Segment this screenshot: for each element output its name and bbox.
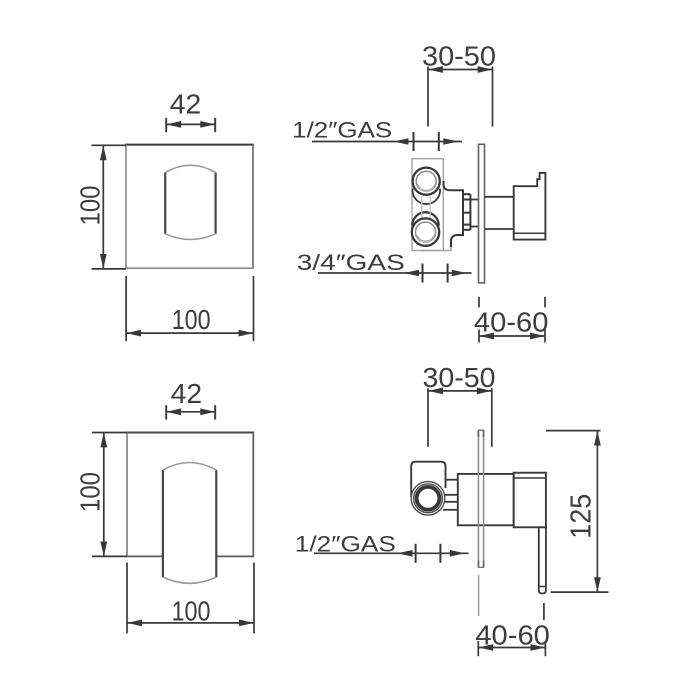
svg-text:30-50: 30-50 xyxy=(423,362,496,393)
svg-text:40-60: 40-60 xyxy=(475,619,550,650)
svg-text:42: 42 xyxy=(170,89,202,120)
svg-text:1/2″GAS: 1/2″GAS xyxy=(292,118,392,143)
svg-text:3/4″GAS: 3/4″GAS xyxy=(297,250,405,275)
svg-text:100: 100 xyxy=(172,596,211,627)
svg-text:40-60: 40-60 xyxy=(474,307,549,338)
svg-text:125: 125 xyxy=(566,494,598,539)
svg-text:30-50: 30-50 xyxy=(422,40,496,71)
svg-text:100: 100 xyxy=(75,186,106,226)
svg-text:100: 100 xyxy=(172,304,211,335)
svg-text:42: 42 xyxy=(171,378,203,409)
svg-text:100: 100 xyxy=(75,472,106,512)
